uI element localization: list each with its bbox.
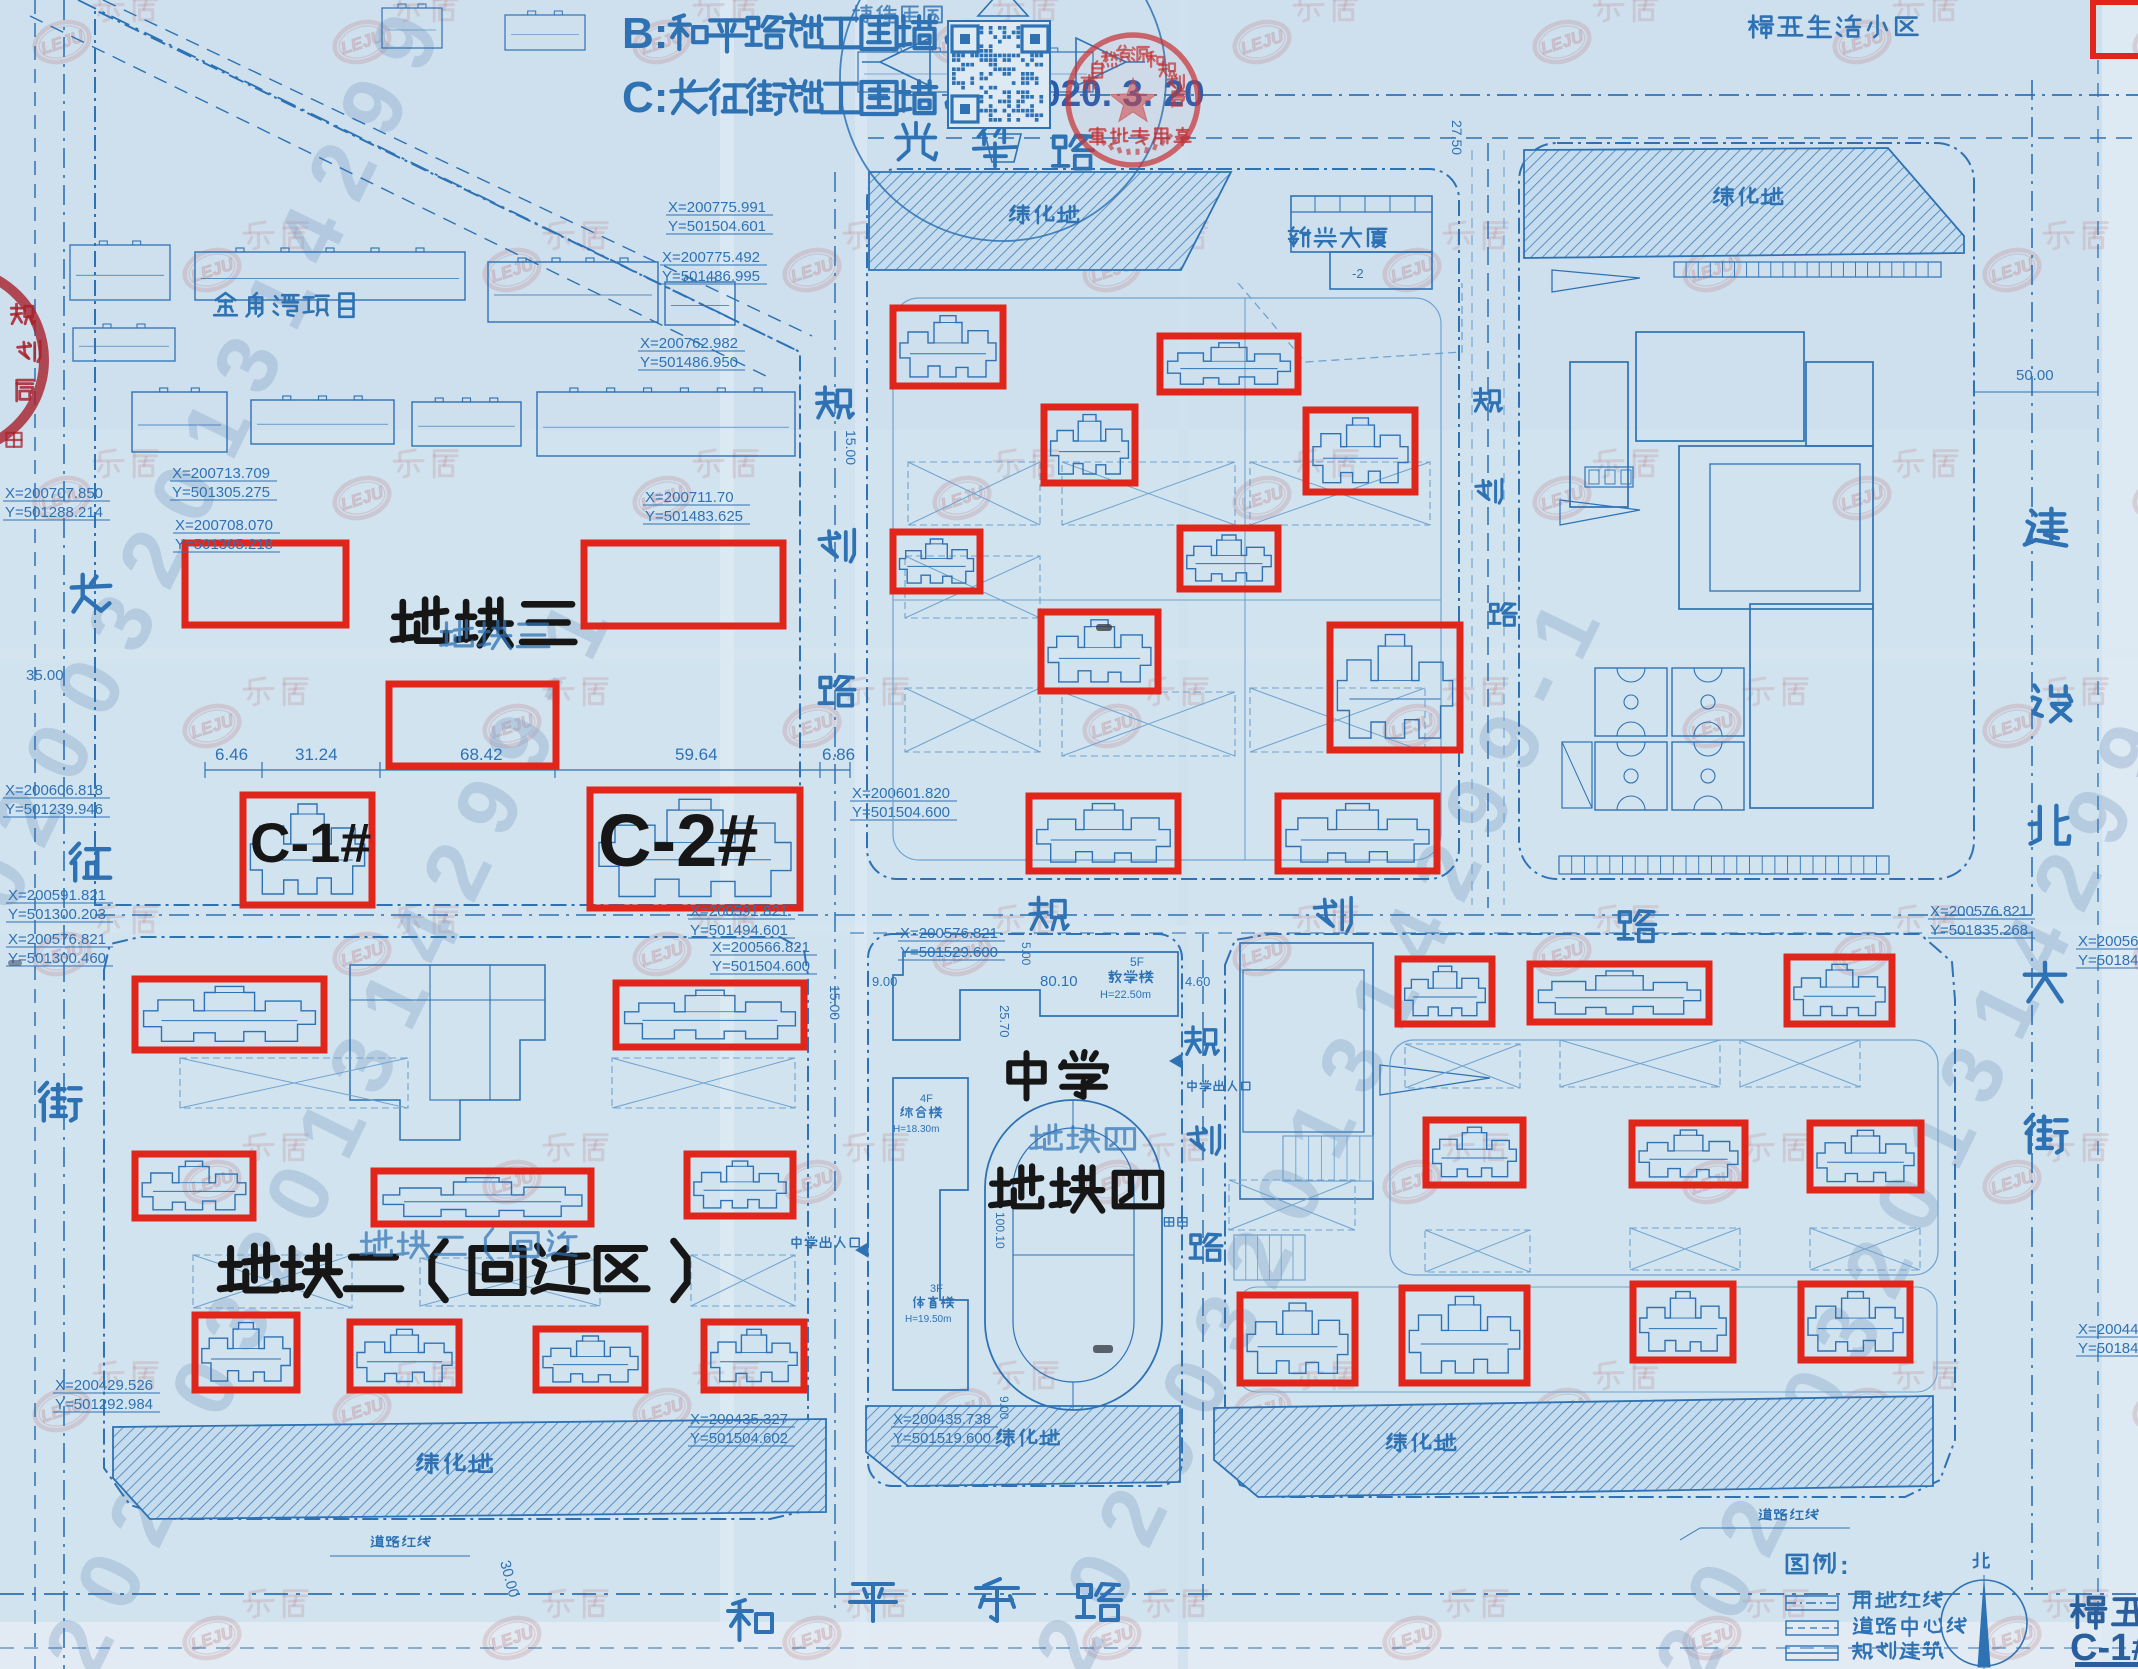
svg-text:4F: 4F [920,1093,933,1105]
svg-text:Y=501486.950: Y=501486.950 [640,354,738,371]
svg-text:27.50: 27.50 [1449,120,1465,155]
svg-text:6.46: 6.46 [215,745,248,764]
svg-text:X=200591.821: X=200591.821 [8,887,106,904]
svg-text:X=200762.982: X=200762.982 [640,335,738,352]
svg-text:5.00: 5.00 [1019,942,1033,966]
svg-text:Y=501300.203: Y=501300.203 [8,906,106,923]
svg-text:X=200576.821: X=200576.821 [900,925,998,942]
svg-text:X=200713.709: X=200713.709 [172,465,270,482]
svg-text:100.10: 100.10 [993,1212,1007,1249]
svg-text:Y=501288.214: Y=501288.214 [5,504,103,521]
svg-text:X=200444.70: X=200444.70 [2078,1321,2138,1338]
svg-text:Y=501835.268: Y=501835.268 [1930,922,2028,939]
svg-text:Y=501292.984: Y=501292.984 [55,1396,153,1413]
svg-text:50.00: 50.00 [2016,367,2054,384]
svg-text:C-2#: C-2# [598,799,758,882]
svg-text:68.42: 68.42 [460,745,503,764]
svg-text:X=200591.821: X=200591.821 [690,903,788,920]
svg-text:Y=501504.602: Y=501504.602 [690,1430,788,1447]
svg-text:3F: 3F [930,1283,943,1295]
svg-text:X=200707.850: X=200707.850 [5,485,103,502]
svg-text:Y=501504.600: Y=501504.600 [852,804,950,821]
svg-text:Y=501494.601: Y=501494.601 [690,922,788,939]
svg-text:Y=501504.601: Y=501504.601 [668,218,766,235]
svg-text:Y=501846.542: Y=501846.542 [2078,1340,2138,1357]
svg-text:H=22.50m: H=22.50m [1100,989,1151,1001]
svg-text:35.00: 35.00 [26,667,64,684]
svg-text:4.60: 4.60 [1185,974,1210,989]
svg-text:X=200576.821: X=200576.821 [1930,903,2028,920]
svg-text:15.00: 15.00 [827,985,843,1020]
svg-text:Y=501519.600: Y=501519.600 [893,1430,991,1447]
svg-text:Y=501305.275: Y=501305.275 [172,484,270,501]
svg-text:5F: 5F [1130,955,1144,969]
svg-text:X=200708.070: X=200708.070 [175,517,273,534]
svg-text:6.86: 6.86 [822,745,855,764]
svg-text::: : [1840,1550,1849,1580]
svg-text:80.10: 80.10 [1040,973,1078,990]
svg-text:-2: -2 [1352,266,1364,281]
svg-text:H=19.50m: H=19.50m [905,1314,951,1325]
svg-text:Y=501239.946: Y=501239.946 [5,801,103,818]
svg-text:H=18.30m: H=18.30m [893,1124,939,1135]
svg-text:C-1#: C-1# [250,811,371,874]
svg-text:X=200561.821: X=200561.821 [2078,933,2138,950]
svg-text:X=200566.821: X=200566.821 [712,939,810,956]
svg-text:X=200601.820: X=200601.820 [852,785,950,802]
svg-text:25.70: 25.70 [997,1005,1012,1038]
svg-text:X=200775.991: X=200775.991 [668,199,766,216]
svg-text:X=200576.821: X=200576.821 [8,931,106,948]
svg-text:X=200435.738: X=200435.738 [893,1411,991,1428]
svg-text:B:: B: [622,9,668,58]
svg-text:X=200606.818: X=200606.818 [5,782,103,799]
svg-text:Y=501483.625: Y=501483.625 [645,508,743,525]
svg-text:Y=501305.218: Y=501305.218 [175,536,273,553]
svg-text:31.24: 31.24 [295,745,338,764]
svg-text:Y=501300.460: Y=501300.460 [8,950,106,967]
svg-text:Y=501486.995: Y=501486.995 [662,268,760,285]
svg-text:9.00: 9.00 [872,974,897,989]
svg-text:X=200435.327: X=200435.327 [690,1411,788,1428]
svg-text:C:: C: [622,73,668,122]
svg-text:59.64: 59.64 [675,745,718,764]
svg-text:9.00: 9.00 [997,1396,1011,1420]
svg-text:X=200429.526: X=200429.526 [55,1377,153,1394]
svg-text:X=200711.70: X=200711.70 [645,489,734,506]
svg-text:15.00: 15.00 [843,430,859,465]
svg-text:X=200775.492: X=200775.492 [662,249,760,266]
svg-text:Y=501504.600: Y=501504.600 [712,958,810,975]
svg-text:Y=501845.413: Y=501845.413 [2078,952,2138,969]
